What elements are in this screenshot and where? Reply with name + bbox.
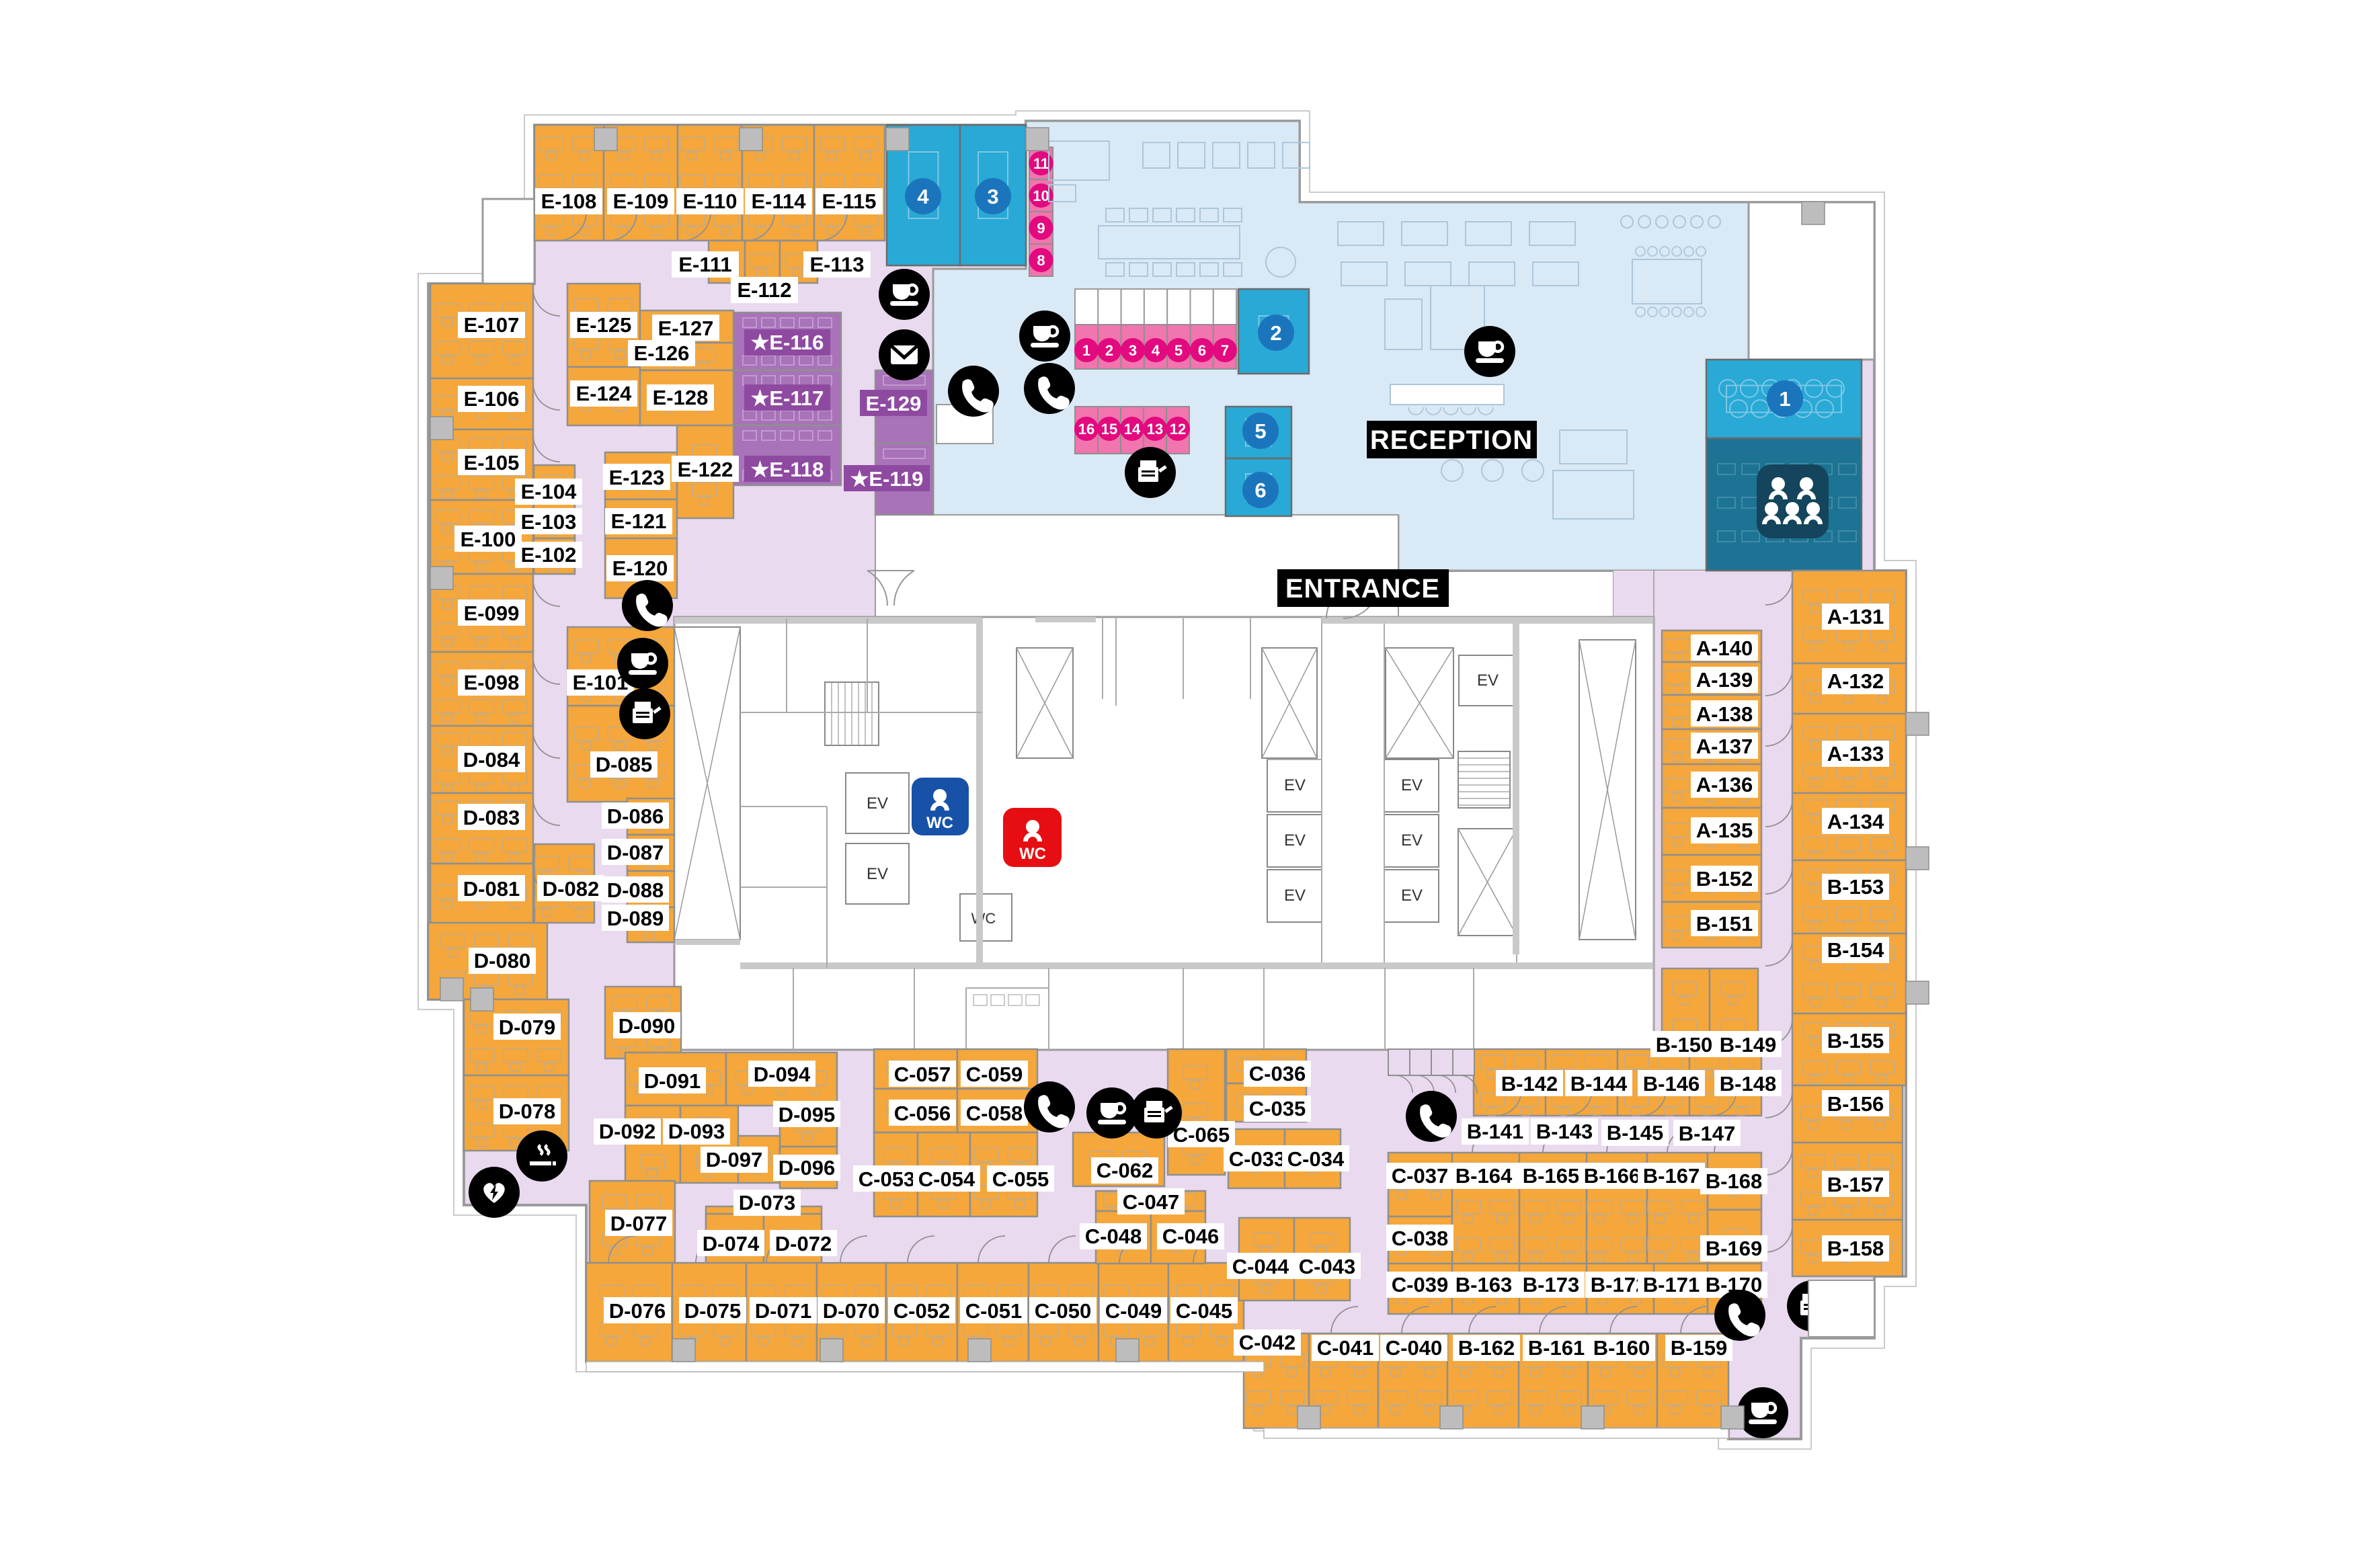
svg-text:6: 6 <box>1254 479 1266 502</box>
svg-text:C-054: C-054 <box>918 1167 975 1191</box>
svg-text:4: 4 <box>1152 342 1160 359</box>
svg-text:2: 2 <box>1270 321 1281 345</box>
svg-text:E-105: E-105 <box>464 451 520 474</box>
svg-text:C-062: C-062 <box>1096 1159 1153 1182</box>
svg-text:B-156: B-156 <box>1827 1092 1884 1116</box>
svg-text:E-122: E-122 <box>678 458 733 481</box>
svg-text:5: 5 <box>1174 342 1183 359</box>
svg-text:C-048: C-048 <box>1085 1225 1142 1248</box>
svg-text:A-134: A-134 <box>1827 810 1884 833</box>
svg-text:E-120: E-120 <box>612 556 668 580</box>
svg-text:C-058: C-058 <box>966 1102 1023 1125</box>
svg-text:D-095: D-095 <box>779 1103 835 1126</box>
svg-text:B-161: B-161 <box>1528 1336 1585 1360</box>
svg-text:C-059: C-059 <box>966 1063 1023 1086</box>
svg-text:D-096: D-096 <box>779 1156 835 1180</box>
svg-text:B-158: B-158 <box>1827 1237 1884 1260</box>
svg-text:★E-118: ★E-118 <box>751 458 824 481</box>
svg-text:EV: EV <box>1477 671 1499 690</box>
svg-text:E-107: E-107 <box>464 313 520 337</box>
svg-text:B-149: B-149 <box>1720 1033 1776 1057</box>
svg-text:D-084: D-084 <box>463 748 520 772</box>
svg-text:C-042: C-042 <box>1239 1331 1295 1354</box>
svg-text:10: 10 <box>1033 188 1049 204</box>
svg-text:D-086: D-086 <box>607 804 664 828</box>
svg-text:D-083: D-083 <box>463 806 520 829</box>
svg-text:C-040: C-040 <box>1386 1336 1442 1360</box>
svg-text:EV: EV <box>1401 776 1423 794</box>
svg-text:C-057: C-057 <box>894 1063 951 1086</box>
svg-text:B-155: B-155 <box>1827 1029 1884 1053</box>
svg-text:D-071: D-071 <box>755 1299 811 1323</box>
svg-text:B-150: B-150 <box>1656 1033 1712 1057</box>
svg-text:D-085: D-085 <box>596 753 652 776</box>
svg-text:A-131: A-131 <box>1827 605 1884 628</box>
svg-text:E-114: E-114 <box>751 190 806 213</box>
svg-text:C-045: C-045 <box>1176 1299 1232 1323</box>
svg-text:D-078: D-078 <box>499 1100 555 1123</box>
svg-text:B-164: B-164 <box>1455 1164 1513 1188</box>
svg-text:D-088: D-088 <box>607 878 664 902</box>
svg-text:A-136: A-136 <box>1696 773 1753 796</box>
svg-text:B-147: B-147 <box>1679 1122 1735 1145</box>
svg-text:E-108: E-108 <box>541 190 597 213</box>
svg-text:D-074: D-074 <box>703 1232 760 1255</box>
svg-text:E-109: E-109 <box>613 190 669 213</box>
svg-text:EV: EV <box>867 794 888 813</box>
svg-text:D-092: D-092 <box>599 1120 655 1143</box>
svg-text:B-148: B-148 <box>1720 1072 1776 1096</box>
svg-text:14: 14 <box>1124 421 1141 438</box>
svg-text:B-145: B-145 <box>1607 1121 1663 1145</box>
svg-text:B-154: B-154 <box>1827 938 1884 962</box>
svg-text:C-043: C-043 <box>1299 1255 1355 1278</box>
svg-text:B-168: B-168 <box>1706 1169 1762 1193</box>
svg-text:D-082: D-082 <box>543 877 599 901</box>
svg-text:E-102: E-102 <box>521 543 577 567</box>
svg-text:D-080: D-080 <box>474 949 530 973</box>
svg-text:EV: EV <box>1284 886 1306 905</box>
svg-text:16: 16 <box>1078 421 1094 438</box>
svg-text:E-125: E-125 <box>576 313 632 337</box>
svg-text:D-076: D-076 <box>609 1299 666 1323</box>
svg-text:E-123: E-123 <box>609 466 665 489</box>
svg-text:EV: EV <box>1401 886 1423 905</box>
svg-text:B-171: B-171 <box>1643 1273 1700 1296</box>
svg-text:B-165: B-165 <box>1523 1164 1579 1188</box>
svg-text:A-138: A-138 <box>1696 702 1753 726</box>
svg-text:C-033: C-033 <box>1229 1147 1285 1171</box>
svg-text:B-143: B-143 <box>1536 1120 1593 1143</box>
svg-text:15: 15 <box>1101 421 1117 438</box>
svg-text:1: 1 <box>1082 342 1090 359</box>
svg-text:B-144: B-144 <box>1570 1072 1628 1096</box>
svg-text:★E-119: ★E-119 <box>850 467 924 491</box>
svg-text:E-110: E-110 <box>682 190 737 213</box>
svg-text:A-137: A-137 <box>1696 735 1753 758</box>
svg-text:3: 3 <box>987 185 998 208</box>
svg-text:13: 13 <box>1147 421 1163 438</box>
svg-text:C-046: C-046 <box>1162 1225 1219 1248</box>
svg-text:B-151: B-151 <box>1696 912 1753 936</box>
svg-text:E-126: E-126 <box>634 341 690 365</box>
svg-text:B-160: B-160 <box>1593 1336 1650 1360</box>
svg-text:12: 12 <box>1170 421 1186 438</box>
svg-text:A-139: A-139 <box>1696 668 1753 692</box>
svg-text:C-051: C-051 <box>965 1299 1022 1323</box>
svg-text:WC: WC <box>971 910 996 927</box>
svg-text:B-162: B-162 <box>1458 1336 1515 1360</box>
svg-text:C-053: C-053 <box>859 1167 915 1191</box>
svg-text:11: 11 <box>1033 155 1049 172</box>
svg-text:E-129: E-129 <box>866 392 922 415</box>
svg-text:A-132: A-132 <box>1827 669 1884 693</box>
svg-text:RECEPTION: RECEPTION <box>1370 425 1533 455</box>
svg-text:C-049: C-049 <box>1105 1299 1162 1323</box>
svg-text:E-113: E-113 <box>809 253 864 276</box>
svg-text:D-081: D-081 <box>463 877 520 901</box>
svg-text:B-169: B-169 <box>1706 1237 1762 1260</box>
svg-text:E-100: E-100 <box>461 528 516 551</box>
svg-text:3: 3 <box>1129 342 1137 359</box>
svg-text:1: 1 <box>1779 387 1790 411</box>
svg-text:EV: EV <box>867 865 888 883</box>
svg-text:C-041: C-041 <box>1317 1336 1373 1360</box>
svg-text:B-142: B-142 <box>1501 1072 1558 1096</box>
svg-text:E-104: E-104 <box>521 480 577 503</box>
svg-text:C-055: C-055 <box>992 1167 1049 1191</box>
svg-text:D-094: D-094 <box>754 1063 811 1086</box>
svg-text:E-115: E-115 <box>822 190 876 213</box>
svg-text:E-124: E-124 <box>576 382 632 405</box>
svg-text:EV: EV <box>1284 776 1306 794</box>
svg-text:B-173: B-173 <box>1523 1273 1579 1296</box>
svg-text:B-152: B-152 <box>1696 867 1753 891</box>
svg-text:C-052: C-052 <box>893 1299 950 1323</box>
svg-text:E-099: E-099 <box>464 602 520 625</box>
svg-text:D-070: D-070 <box>823 1299 879 1323</box>
svg-text:C-038: C-038 <box>1392 1227 1448 1250</box>
svg-text:E-127: E-127 <box>658 317 714 340</box>
svg-text:C-065: C-065 <box>1173 1123 1230 1147</box>
svg-text:D-077: D-077 <box>610 1212 667 1235</box>
svg-text:E-121: E-121 <box>611 509 667 533</box>
svg-text:C-036: C-036 <box>1249 1062 1306 1085</box>
svg-text:EV: EV <box>1284 831 1306 850</box>
svg-text:C-050: C-050 <box>1035 1299 1091 1323</box>
svg-text:C-039: C-039 <box>1392 1273 1448 1296</box>
svg-text:7: 7 <box>1221 342 1229 359</box>
svg-text:B-141: B-141 <box>1467 1120 1523 1143</box>
svg-text:5: 5 <box>1254 419 1266 443</box>
svg-text:E-128: E-128 <box>653 386 709 409</box>
svg-text:C-035: C-035 <box>1249 1097 1306 1120</box>
svg-text:B-166: B-166 <box>1584 1164 1640 1188</box>
svg-text:8: 8 <box>1037 252 1045 269</box>
svg-text:D-072: D-072 <box>775 1232 832 1255</box>
svg-text:2: 2 <box>1105 342 1113 359</box>
svg-text:D-079: D-079 <box>499 1016 555 1039</box>
svg-text:C-034: C-034 <box>1287 1147 1345 1171</box>
svg-text:E-098: E-098 <box>464 671 520 694</box>
svg-text:★E-117: ★E-117 <box>751 386 824 410</box>
svg-text:B-167: B-167 <box>1643 1164 1700 1188</box>
svg-text:A-135: A-135 <box>1696 819 1753 842</box>
svg-text:E-112: E-112 <box>737 278 791 302</box>
svg-text:B-153: B-153 <box>1827 875 1884 899</box>
svg-text:9: 9 <box>1037 220 1045 237</box>
svg-text:D-089: D-089 <box>607 907 664 930</box>
svg-text:A-140: A-140 <box>1696 636 1753 660</box>
svg-text:E-106: E-106 <box>464 387 520 411</box>
svg-text:E-111: E-111 <box>678 253 731 276</box>
svg-text:EV: EV <box>1401 831 1423 850</box>
svg-text:C-044: C-044 <box>1232 1255 1289 1278</box>
svg-text:B-157: B-157 <box>1827 1173 1884 1196</box>
svg-text:D-087: D-087 <box>607 841 664 864</box>
svg-text:ENTRANCE: ENTRANCE <box>1285 574 1440 604</box>
svg-text:B-163: B-163 <box>1455 1273 1512 1296</box>
svg-text:A-133: A-133 <box>1827 742 1884 766</box>
svg-text:C-037: C-037 <box>1392 1164 1448 1188</box>
svg-text:D-093: D-093 <box>668 1120 725 1143</box>
svg-text:WC: WC <box>1019 845 1046 863</box>
svg-text:E-103: E-103 <box>521 510 577 534</box>
svg-text:D-075: D-075 <box>684 1299 741 1323</box>
svg-text:B-146: B-146 <box>1643 1072 1700 1096</box>
svg-text:4: 4 <box>917 185 929 208</box>
svg-text:D-090: D-090 <box>619 1014 675 1038</box>
svg-text:C-047: C-047 <box>1123 1190 1179 1214</box>
svg-text:C-056: C-056 <box>894 1102 951 1125</box>
svg-text:B-159: B-159 <box>1671 1336 1727 1360</box>
svg-text:★E-116: ★E-116 <box>751 331 824 354</box>
svg-text:WC: WC <box>926 814 953 832</box>
svg-text:6: 6 <box>1198 342 1206 359</box>
svg-text:D-097: D-097 <box>706 1148 762 1171</box>
svg-text:D-073: D-073 <box>739 1191 795 1214</box>
svg-text:D-091: D-091 <box>644 1069 701 1093</box>
